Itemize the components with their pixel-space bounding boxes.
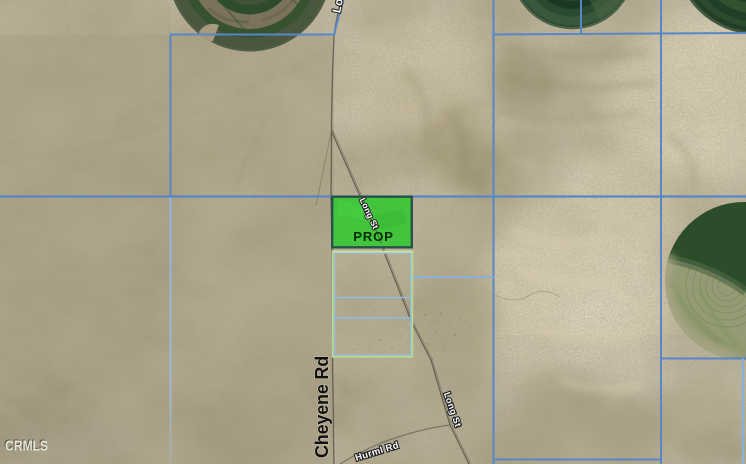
svg-text:Cheyene Rd: Cheyene Rd [312,356,332,458]
svg-text:CRMLS: CRMLS [5,438,48,455]
svg-text:PROP: PROP [353,229,394,244]
